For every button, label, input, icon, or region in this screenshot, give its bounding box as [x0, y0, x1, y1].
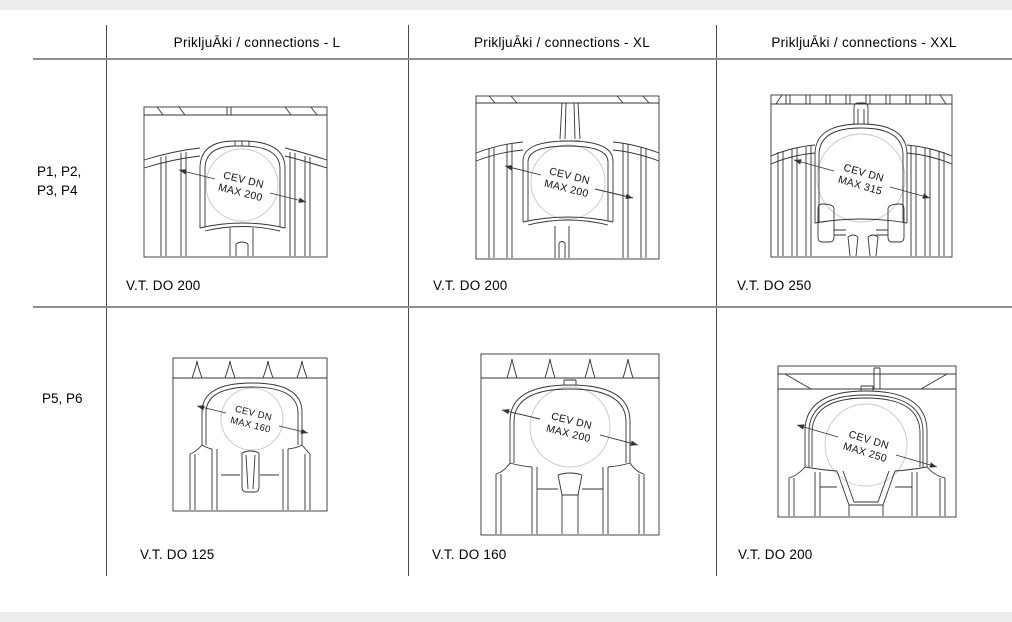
dimension-arrow: CEV DN MAX 315 — [794, 160, 930, 198]
bottom-notches — [202, 445, 302, 510]
caption-p5p6-xxl: V.T. DO 200 — [738, 547, 813, 562]
dimension-arrow: CEV DN MAX 200 — [179, 169, 306, 204]
bottom-frame-strip — [0, 612, 1012, 622]
side-ribs — [789, 467, 945, 516]
dome-top-tab — [861, 386, 873, 391]
pipe-circle — [531, 145, 605, 219]
dimension-arrow: CEV DN MAX 200 — [502, 410, 638, 445]
technical-drawing-p5p6-xxl: CEV DN MAX 250 — [777, 365, 957, 518]
spout — [854, 103, 868, 124]
top-band — [778, 374, 956, 389]
caption-p5p6-l: V.T. DO 125 — [140, 547, 215, 562]
drawing-frame — [173, 358, 327, 511]
dimension-line-left — [794, 160, 834, 171]
catalog-page: { "colors": { "drawing_line": "#333333",… — [0, 0, 1012, 622]
center-notch — [805, 467, 927, 516]
side-shoulders — [190, 445, 310, 510]
caption-p1p4-l: V.T. DO 200 — [126, 278, 201, 293]
row-rule — [33, 306, 1012, 308]
column-separator-2 — [408, 25, 409, 576]
dimension-line-right — [600, 435, 638, 445]
dome-top-tab — [564, 380, 576, 385]
dimension-line-right — [890, 187, 930, 198]
bottom-channel — [230, 228, 253, 256]
caption-p5p6-xl: V.T. DO 160 — [432, 547, 507, 562]
dimension-line-left — [502, 410, 540, 419]
technical-drawing-p1p4-l: CEV DN MAX 200 — [143, 106, 328, 258]
dimension-arrow: CEV DN MAX 160 — [197, 403, 308, 435]
rib-spikes — [507, 359, 633, 378]
dimension-arrow: CEV DN MAX 250 — [797, 425, 937, 467]
column-header-l: PrikljuĀki / connections - L — [106, 30, 408, 56]
tank-body-lines — [481, 354, 659, 535]
technical-drawing-p5p6-l: CEV DN MAX 160 — [172, 357, 328, 512]
caption-p1p4-xl: V.T. DO 200 — [433, 278, 508, 293]
column-separator-3 — [716, 25, 717, 576]
technical-drawing-p1p4-xl: CEV DN MAX 200 — [475, 95, 660, 260]
dimension-line-right — [595, 189, 633, 198]
column-header-xxl: PrikljuĀki / connections - XXL — [716, 30, 1012, 56]
right-ear — [876, 204, 904, 242]
bottom-channel — [555, 226, 569, 258]
row-label-line1: P1, P2, — [37, 162, 81, 181]
technical-drawing-p1p4-xxl: CEV DN MAX 315 — [770, 94, 953, 258]
center-channel — [558, 473, 582, 534]
side-shoulders — [496, 463, 644, 534]
rib-spikes — [192, 361, 307, 378]
tank-body-lines — [173, 358, 327, 511]
dome-bottom — [200, 223, 285, 231]
dimension-line-left — [179, 170, 215, 179]
row-label-p5-p6: P5, P6 — [42, 389, 83, 408]
row-label-p1-p4: P1, P2, P3, P4 — [37, 162, 81, 200]
band-hatches — [489, 96, 649, 103]
caption-p1p4-xxl: V.T. DO 250 — [737, 278, 812, 293]
band-hatches — [157, 107, 317, 115]
left-ear — [818, 204, 846, 242]
header-rule — [33, 58, 1012, 60]
bottom-legs — [848, 235, 878, 256]
arch-lines — [144, 148, 327, 168]
pipe-circle — [530, 387, 610, 467]
row-label-line1: P5, P6 — [42, 389, 83, 408]
drawing-frame — [481, 354, 659, 535]
bottom-notches — [510, 463, 630, 534]
top-frame-strip — [0, 0, 1012, 10]
dome-bottom — [523, 217, 613, 225]
technical-drawing-p5p6-xl: CEV DN MAX 200 — [480, 353, 660, 536]
rib-lines — [489, 143, 646, 258]
dimension-line-left — [797, 425, 838, 437]
dimension-line-left — [197, 406, 226, 413]
dome-top-tab — [235, 141, 249, 146]
center-tongue — [242, 451, 259, 492]
dimension-line-right — [279, 426, 308, 433]
column-separator-1 — [106, 25, 107, 576]
row-label-line2: P3, P4 — [37, 181, 81, 200]
spout — [560, 103, 580, 141]
column-header-xl: PrikljuĀki / connections - XL — [408, 30, 716, 56]
dimension-arrow: CEV DN MAX 200 — [505, 165, 633, 200]
rib-lines — [161, 152, 310, 256]
